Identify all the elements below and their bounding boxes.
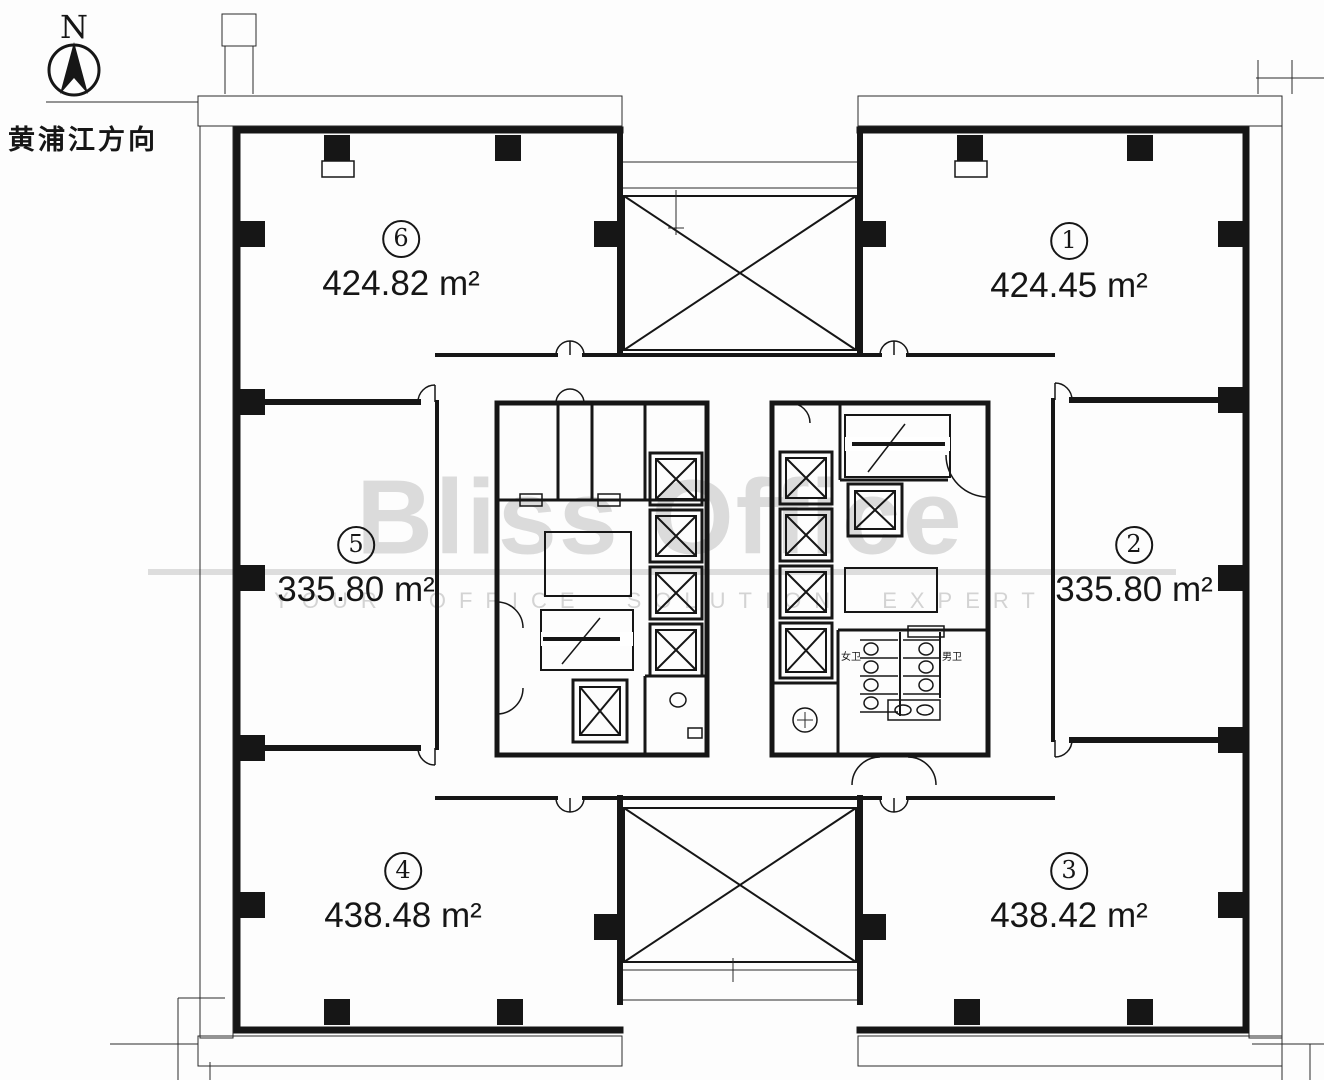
unit-4-label: 4 438.48 m² [324,852,482,936]
unit-4-area: 438.48 m² [324,896,482,936]
unit-3-label: 3 438.42 m² [990,852,1148,936]
unit-6-number: 6 [382,220,420,258]
unit-2-number: 2 [1115,526,1153,564]
stair-east [845,415,950,477]
atrium-south [624,808,856,962]
female-wc-label: 女卫 [841,650,861,663]
elevators-east [780,452,902,678]
unit-4-number: 4 [384,852,422,890]
unit-3-number: 3 [1050,852,1088,890]
compass-north-letter: N [60,8,88,46]
compass-needle-icon [60,42,88,94]
unit-5-number: 5 [337,526,375,564]
unit-5-label: 5 335.80 m² [277,526,435,610]
north-compass: N [49,8,99,95]
male-wc-label: 男卫 [942,651,962,663]
unit-1-number: 1 [1050,222,1088,260]
shaft-hatched-west [545,532,631,596]
unit-6-label: 6 424.82 m² [322,220,480,304]
core-west [497,403,707,755]
river-direction-label: 黄浦江方向 [8,118,158,157]
unit-1-area: 424.45 m² [990,266,1148,306]
shaft-hatched-east [845,568,937,612]
door-arcs [418,341,1072,812]
unit-2-label: 2 335.80 m² [1055,526,1213,610]
wc-small-west [670,693,702,738]
core-east: 女卫 男卫 [772,403,988,755]
floor-plan-canvas: Bliss Office YOUR OFFICE SOLUTION EXPERT [0,0,1324,1080]
unit-3-area: 438.42 m² [990,896,1148,936]
corridor-ring [437,355,1053,798]
unit-2-area: 335.80 m² [1055,570,1213,610]
stair-west [541,610,633,670]
atrium-north [624,196,856,350]
unit-6-area: 424.82 m² [322,264,480,304]
unit-1-label: 1 424.45 m² [990,222,1148,306]
unit-5-area: 335.80 m² [277,570,435,610]
